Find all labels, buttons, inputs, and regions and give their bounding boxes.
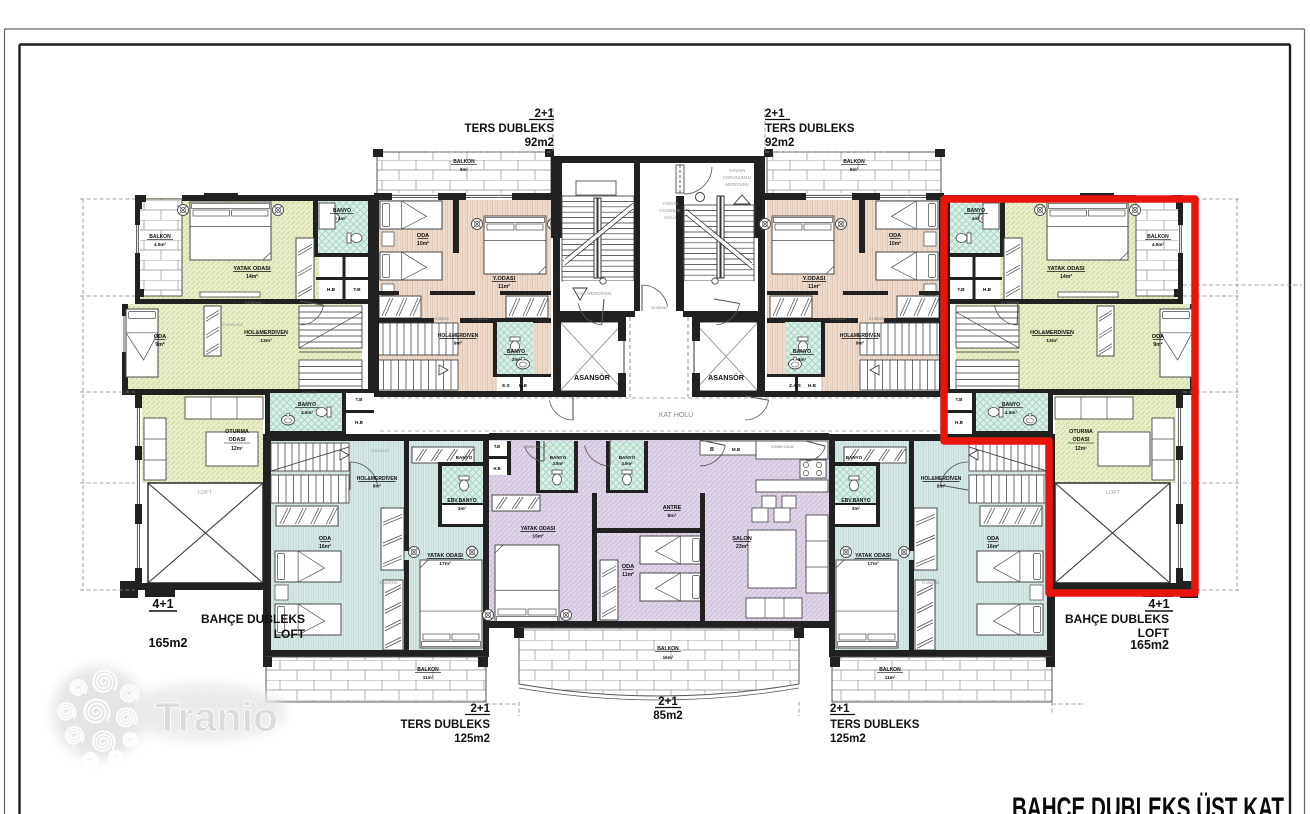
svg-text:14m²: 14m² (1060, 274, 1072, 280)
svg-text:BALKON: BALKON (149, 234, 171, 240)
svg-text:92m2: 92m2 (525, 137, 554, 149)
svg-text:BALKON: BALKON (843, 159, 865, 165)
svg-text:H.B: H.B (983, 287, 992, 293)
svg-text:3m²: 3m² (798, 357, 807, 362)
svg-text:H.B: H.B (355, 420, 364, 425)
svg-text:BALKON: BALKON (1147, 234, 1169, 240)
svg-text:11m²: 11m² (622, 572, 634, 578)
svg-text:9m²: 9m² (1153, 342, 1162, 348)
svg-text:ODASI: ODASI (1072, 437, 1090, 443)
svg-text:OTURMA ODA: OTURMA ODA (221, 323, 243, 327)
svg-text:T.B: T.B (353, 287, 361, 293)
svg-text:OTURMA: OTURMA (1069, 429, 1093, 435)
svg-text:92m2: 92m2 (765, 137, 794, 149)
svg-text:K2 90/240: K2 90/240 (651, 306, 667, 310)
svg-text:ASANSÖR: ASANSÖR (708, 373, 745, 382)
svg-text:SALON: SALON (732, 536, 752, 542)
svg-text:KOMBI+DOLAP: KOMBI+DOLAP (772, 445, 795, 449)
svg-text:4m²: 4m² (972, 216, 981, 221)
svg-text:11m²: 11m² (423, 675, 434, 680)
svg-text:ODA: ODA (889, 233, 901, 239)
svg-text:3m²: 3m² (458, 506, 467, 511)
svg-text:165m2: 165m2 (149, 636, 188, 650)
svg-text:H.B: H.B (327, 287, 336, 293)
svg-text:BANYO: BANYO (619, 455, 636, 460)
svg-text:B: B (710, 447, 714, 453)
svg-text:85m2: 85m2 (653, 710, 682, 722)
svg-text:K1 90/210: K1 90/210 (302, 391, 318, 395)
svg-text:TERS DUBLEKS: TERS DUBLEKS (465, 123, 555, 135)
svg-text:K1 90/210: K1 90/210 (472, 317, 488, 321)
svg-text:M.B: M.B (732, 447, 741, 452)
svg-text:BAHÇE DUBLEKS: BAHÇE DUBLEKS (1065, 612, 1169, 626)
svg-text:Tranio: Tranio (155, 694, 278, 740)
svg-text:K1 90/210: K1 90/210 (1001, 301, 1017, 305)
svg-text:ASANSÖR: ASANSÖR (574, 373, 611, 382)
svg-text:Y.ODASI: Y.ODASI (493, 276, 516, 282)
svg-text:ODA: ODA (417, 233, 429, 239)
svg-text:K1 90/210: K1 90/210 (830, 317, 846, 321)
svg-text:10m²: 10m² (417, 241, 429, 247)
svg-text:11m²: 11m² (885, 675, 896, 680)
svg-text:15m²: 15m² (532, 534, 544, 540)
svg-text:13m²: 13m² (260, 338, 272, 344)
svg-text:T.B: T.B (956, 397, 964, 402)
svg-text:13m²: 13m² (1046, 338, 1058, 344)
svg-text:ODA: ODA (622, 564, 634, 570)
svg-text:BALKON: BALKON (417, 667, 439, 673)
svg-text:4m²: 4m² (338, 216, 347, 221)
svg-text:HOL&MERDIVEN: HOL&MERDIVEN (438, 333, 479, 339)
svg-text:HOL&MERDİVEN: HOL&MERDİVEN (921, 475, 962, 482)
svg-text:ANTRE: ANTRE (663, 505, 682, 511)
svg-text:YATAK ODASI: YATAK ODASI (233, 266, 271, 272)
svg-text:EBV.BANYO: EBV.BANYO (447, 498, 476, 504)
svg-text:ODASI: ODASI (228, 437, 246, 443)
svg-text:9m²: 9m² (454, 341, 463, 346)
svg-text:BALKON: BALKON (453, 159, 475, 165)
svg-text:Z.A.S: Z.A.S (789, 383, 801, 388)
svg-text:KORUNUMLU: KORUNUMLU (723, 175, 751, 180)
svg-text:HOL&MERDIVEN: HOL&MERDIVEN (1030, 330, 1074, 336)
svg-text:BANYO: BANYO (793, 349, 811, 355)
svg-text:10m²: 10m² (889, 241, 901, 247)
svg-text:T.B: T.B (494, 444, 500, 449)
svg-text:17m²: 17m² (439, 561, 451, 567)
svg-text:YANGIN: YANGIN (662, 201, 678, 206)
svg-text:ODA: ODA (987, 536, 999, 542)
svg-text:ODA: ODA (1152, 334, 1164, 340)
svg-text:BANYO: BANYO (456, 455, 473, 460)
svg-text:11m²: 11m² (498, 284, 510, 290)
svg-text:ANA MERDİVEN: ANA MERDİVEN (577, 290, 612, 296)
svg-text:14m²: 14m² (246, 274, 258, 280)
svg-text:BANYO: BANYO (333, 208, 351, 214)
svg-text:3.5m²: 3.5m² (622, 461, 634, 466)
svg-text:YATAK ODASI: YATAK ODASI (521, 526, 556, 532)
svg-text:2+1: 2+1 (534, 108, 554, 120)
svg-text:K1 90/210: K1 90/210 (433, 317, 449, 321)
svg-text:YATAK ODASI: YATAK ODASI (855, 553, 891, 559)
svg-text:TERS DUBLEKS: TERS DUBLEKS (401, 719, 491, 731)
svg-text:HOL&MERDIVEN: HOL&MERDIVEN (244, 330, 288, 336)
svg-text:YATAK ODASI: YATAK ODASI (427, 553, 463, 559)
svg-text:BANYO: BANYO (507, 349, 525, 355)
svg-text:3.5m²: 3.5m² (459, 461, 471, 466)
svg-text:T.B: T.B (957, 287, 965, 293)
svg-text:ODA: ODA (319, 536, 331, 542)
svg-text:2+1: 2+1 (658, 696, 678, 708)
svg-text:H.B: H.B (519, 383, 528, 388)
svg-text:3.5m²: 3.5m² (553, 461, 565, 466)
svg-text:4.5m²: 4.5m² (1005, 410, 1017, 415)
svg-text:LOFT: LOFT (274, 627, 306, 641)
svg-text:17m²: 17m² (867, 561, 879, 567)
svg-text:KOMBI+DOLAP: KOMBI+DOLAP (524, 445, 547, 449)
svg-text:165m2: 165m2 (1130, 638, 1169, 652)
svg-text:BANYO: BANYO (967, 208, 985, 214)
svg-text:H.B: H.B (493, 466, 500, 471)
svg-text:HOL&MERDIVEN: HOL&MERDIVEN (840, 333, 881, 339)
svg-text:8m²: 8m² (668, 513, 677, 519)
svg-text:YANGIN: YANGIN (729, 168, 746, 173)
svg-text:125m2: 125m2 (454, 733, 490, 745)
svg-text:H.B: H.B (808, 383, 817, 388)
svg-text:K1 90/210: K1 90/210 (999, 391, 1015, 395)
svg-text:LOFT: LOFT (1106, 490, 1120, 496)
svg-text:ODA TAKIMI: ODA TAKIMI (371, 449, 389, 453)
svg-text:BANYO: BANYO (298, 402, 316, 408)
svg-text:TERS DUBLEKS: TERS DUBLEKS (765, 123, 855, 135)
svg-text:4.5m²: 4.5m² (1152, 242, 1164, 247)
svg-text:BAHÇE DUBLEKS ÜST KAT: BAHÇE DUBLEKS ÜST KAT (1012, 792, 1284, 814)
svg-text:8m²: 8m² (937, 484, 946, 489)
svg-text:HOL&MERDİVEN: HOL&MERDİVEN (357, 475, 398, 482)
svg-text:BANYO: BANYO (846, 455, 863, 460)
svg-text:9m²: 9m² (850, 167, 859, 172)
svg-text:TV ÜNITESI: TV ÜNITESI (921, 581, 939, 585)
svg-text:ODA: ODA (154, 334, 166, 340)
svg-text:2+1: 2+1 (830, 703, 850, 715)
svg-text:YATAK ODASI: YATAK ODASI (1047, 266, 1085, 272)
svg-text:4+1: 4+1 (1148, 597, 1169, 611)
svg-text:E.S: E.S (502, 383, 509, 388)
svg-text:2+1: 2+1 (765, 108, 785, 120)
svg-text:BALKON: BALKON (879, 667, 901, 673)
svg-text:2+1: 2+1 (470, 703, 490, 715)
svg-text:125m2: 125m2 (830, 733, 866, 745)
svg-text:HOLÜ: HOLÜ (664, 215, 676, 220)
svg-text:K1 90/210: K1 90/210 (245, 301, 261, 305)
svg-text:16m²: 16m² (663, 655, 674, 660)
svg-text:23m²: 23m² (736, 544, 748, 550)
svg-text:16m²: 16m² (987, 544, 999, 550)
svg-text:TV ÜNITESI: TV ÜNITESI (379, 581, 397, 585)
svg-text:12m²: 12m² (231, 446, 243, 452)
svg-text:16m²: 16m² (319, 544, 331, 550)
svg-text:EBV.BANYO: EBV.BANYO (841, 498, 870, 504)
svg-text:12m²: 12m² (1075, 446, 1087, 452)
svg-text:3.5m²: 3.5m² (849, 461, 861, 466)
svg-text:9m²: 9m² (155, 342, 164, 348)
svg-text:BAHÇE DUBLEKS: BAHÇE DUBLEKS (201, 612, 305, 626)
svg-text:4+1: 4+1 (152, 597, 173, 611)
svg-text:BANYO: BANYO (550, 455, 567, 460)
svg-text:8m²: 8m² (373, 484, 382, 489)
svg-text:Y.ODASI: Y.ODASI (803, 276, 826, 282)
svg-text:9m²: 9m² (856, 341, 865, 346)
svg-text:3m²: 3m² (512, 357, 521, 362)
svg-text:T.B: T.B (356, 397, 364, 402)
svg-text:9m²: 9m² (460, 167, 469, 172)
svg-text:3m²: 3m² (852, 506, 861, 511)
svg-text:4.5m²: 4.5m² (154, 242, 166, 247)
svg-text:OTURMA: OTURMA (225, 429, 249, 435)
svg-text:LOFT: LOFT (198, 490, 212, 496)
svg-text:4.5m²: 4.5m² (301, 410, 313, 415)
svg-text:BALKON: BALKON (657, 646, 679, 652)
svg-text:BANYO: BANYO (1002, 402, 1020, 408)
svg-text:GÜVENLİK: GÜVENLİK (659, 208, 680, 213)
svg-text:TERS DUBLEKS: TERS DUBLEKS (830, 719, 920, 731)
svg-text:KAT HOLÜ: KAT HOLÜ (659, 411, 693, 419)
svg-text:K1 90/210: K1 90/210 (869, 317, 885, 321)
svg-text:11m²: 11m² (808, 284, 820, 290)
svg-text:MERDİVEN: MERDİVEN (725, 182, 748, 187)
svg-text:H.B: H.B (955, 420, 964, 425)
